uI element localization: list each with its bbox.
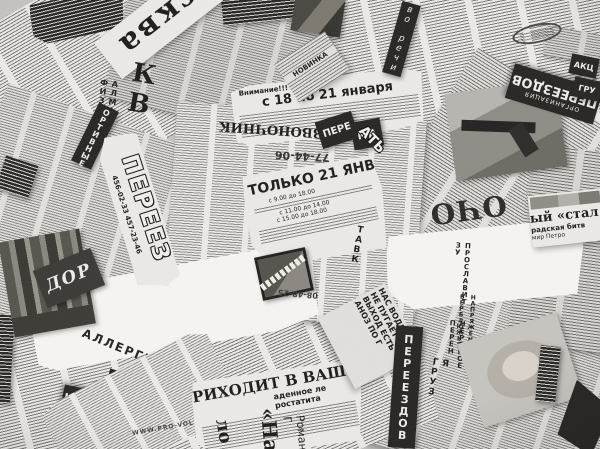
- badge-akts-text: АКЦ: [573, 60, 595, 73]
- badge-gru-text: ГРУ: [578, 83, 597, 95]
- lo-vertical: ло: [198, 417, 235, 445]
- pereezdov-vertical-text: ПЕРЕЕЗДОВ: [395, 328, 416, 447]
- pere-text: ПЕРЕ: [321, 120, 352, 140]
- scrap-stalingrad: ый «стал радская битв мир Петро: [527, 188, 600, 247]
- stamp-fine-print: [520, 26, 555, 41]
- label-diagonal-band: [260, 255, 306, 291]
- dor-text: ДОР: [43, 260, 96, 297]
- newspaper-collage-photo: осква КВ ФИЗИО АЛМАГ ОРТИВНЫЕ ПЕРЕЕЗ 456…: [0, 0, 600, 449]
